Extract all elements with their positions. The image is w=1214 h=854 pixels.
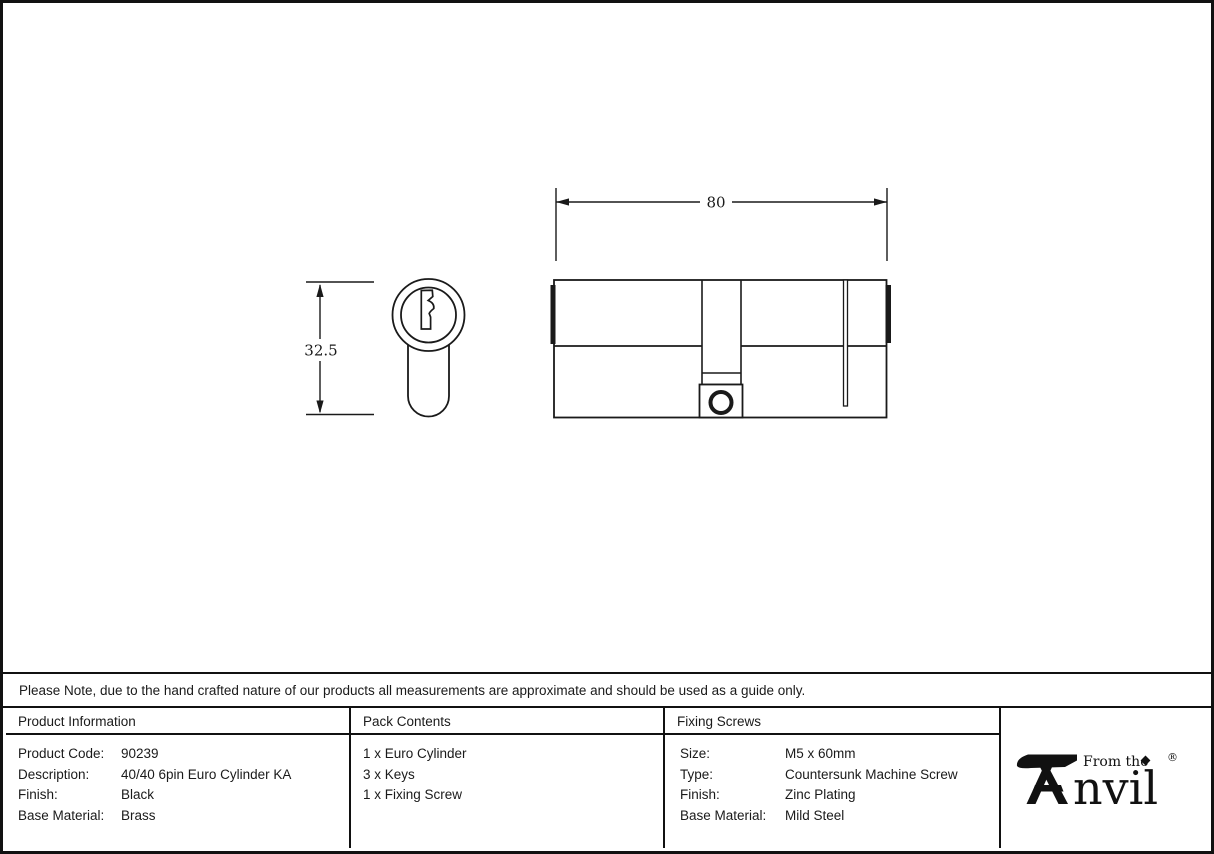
left-face-chamfer xyxy=(551,285,556,344)
cylinder-side-view xyxy=(551,280,892,418)
fixing-screws-header: Fixing Screws xyxy=(665,708,999,735)
row-value: 40/40 6pin Euro Cylinder KA xyxy=(121,765,291,786)
product-information-header: Product Information xyxy=(6,708,349,735)
note-strip: Please Note, due to the hand crafted nat… xyxy=(3,672,1211,708)
pack-contents-column: Pack Contents 1 x Euro Cylinder 3 x Keys… xyxy=(351,708,665,848)
note-text: Please Note, due to the hand crafted nat… xyxy=(19,683,805,698)
info-table: Product Information Product Code: 90239 … xyxy=(6,708,1208,848)
row-value: M5 x 60mm xyxy=(785,744,856,765)
table-row: Finish: Black xyxy=(6,785,349,806)
dimension-width-label: 80 xyxy=(706,194,725,212)
table-row: Type: Countersunk Machine Screw xyxy=(665,765,999,786)
row-label: Base Material: xyxy=(18,806,121,827)
dim-arrow-left xyxy=(556,198,569,205)
pack-contents-header: Pack Contents xyxy=(351,708,663,735)
technical-drawing: 80 32.5 xyxy=(3,3,1214,671)
retaining-pin xyxy=(844,280,848,406)
row-label: Product Code: xyxy=(18,744,121,765)
product-information-column: Product Information Product Code: 90239 … xyxy=(6,708,351,848)
table-row: Finish: Zinc Plating xyxy=(665,785,999,806)
row-value: Black xyxy=(121,785,154,806)
list-item: 3 x Keys xyxy=(351,765,663,786)
row-label: Finish: xyxy=(18,785,121,806)
dimension-height-label: 32.5 xyxy=(304,342,337,360)
table-row: Size: M5 x 60mm xyxy=(665,744,999,765)
logo-cell: From the nvil ® xyxy=(1001,708,1208,848)
table-row: Description: 40/40 6pin Euro Cylinder KA xyxy=(6,765,349,786)
fixing-screws-column: Fixing Screws Size: M5 x 60mm Type: Coun… xyxy=(665,708,1001,848)
row-value: Zinc Plating xyxy=(785,785,856,806)
table-row: Base Material: Mild Steel xyxy=(665,806,999,827)
row-label: Description: xyxy=(18,765,121,786)
list-item: 1 x Fixing Screw xyxy=(351,785,663,806)
dim-arrow-right xyxy=(874,198,887,205)
list-item: 1 x Euro Cylinder xyxy=(351,744,663,765)
cylinder-face-view xyxy=(393,279,465,416)
row-label: Size: xyxy=(680,744,785,765)
row-value: Countersunk Machine Screw xyxy=(785,765,958,786)
right-face-chamfer xyxy=(886,285,892,343)
table-row: Base Material: Brass xyxy=(6,806,349,827)
row-value: 90239 xyxy=(121,744,159,765)
row-value: Mild Steel xyxy=(785,806,844,827)
dim-arrow-top xyxy=(316,284,323,297)
row-label: Base Material: xyxy=(680,806,785,827)
row-value: Brass xyxy=(121,806,156,827)
from-the-anvil-logo: From the nvil ® xyxy=(1015,746,1195,810)
drawing-sheet: 80 32.5 xyxy=(0,0,1214,854)
dimension-height: 32.5 xyxy=(304,282,374,415)
row-label: Finish: xyxy=(680,785,785,806)
logo-brand-suffix: nvil xyxy=(1073,761,1158,810)
dim-arrow-bottom xyxy=(316,401,323,414)
table-row: Product Code: 90239 xyxy=(6,744,349,765)
anvil-icon xyxy=(1016,755,1076,805)
row-label: Type: xyxy=(680,765,785,786)
registered-trademark-icon: ® xyxy=(1167,751,1178,764)
dimension-width: 80 xyxy=(556,188,887,261)
